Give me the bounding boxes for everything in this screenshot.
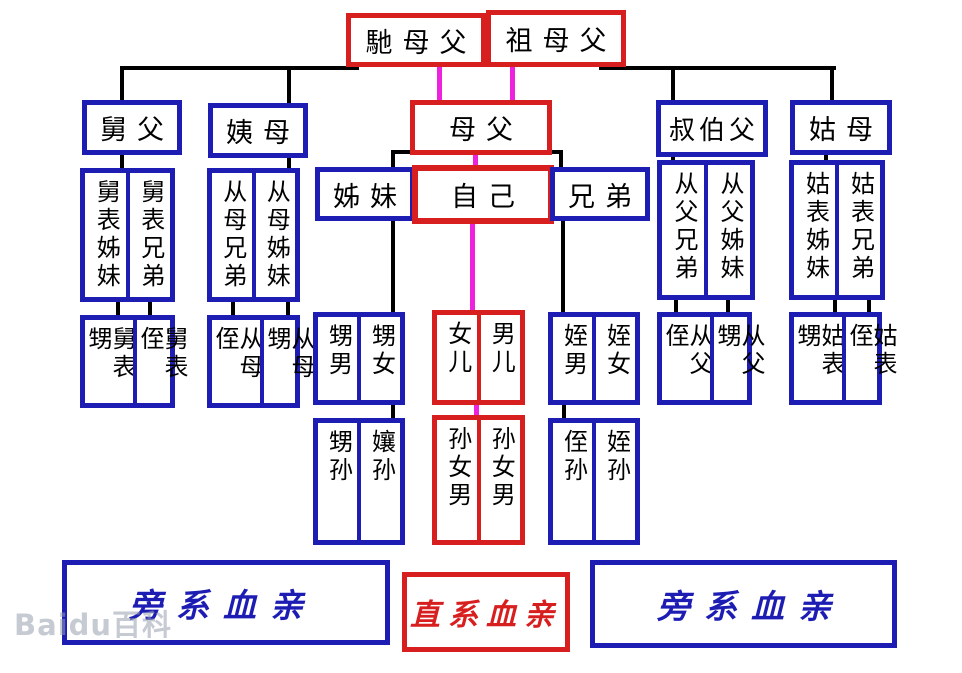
legend-collateral-right: 旁系血亲 [590,560,897,648]
node-column: 舅表侄 [133,320,185,403]
connector-line [120,66,359,70]
node-label: 侄孙 [561,429,585,485]
node-pair-congfu-nephews: 从父侄 从父甥 [657,312,752,405]
node-label: 从父姊妹 [717,171,741,283]
node-pair-own-grandchildren: 孙女男 孙女男 [432,415,525,545]
node-cousin-column: 舅表姊妹 [85,173,126,297]
node-label: 从父兄弟 [671,171,695,283]
node-self: 自己 [412,165,554,224]
baidu-baike-watermark: Baidu百科 [14,602,172,644]
node-pair-maternal-aunt-cousins: 从母兄弟 从母姊妹 [207,168,300,302]
node-label: 舅表甥 [85,326,133,403]
node-label: 祖母父 [496,19,617,58]
node-label: 孃孙 [369,429,393,485]
kinship-diagram: 馳母父 祖母父 舅父 姨母 母父 叔伯父 姑母 舅表姊妹 舅表兄弟 从母兄弟 从… [0,0,962,673]
node-column: 男儿 [477,315,521,400]
node-label: 叔伯父 [665,110,759,147]
node-column: 孃孙 [357,423,400,540]
node-column: 从母侄 [212,320,260,403]
node-label: 孙女男 [445,426,469,510]
node-column: 甥女 [357,317,400,400]
node-pair-gubiao-nephews: 姑表甥 姑表侄 [789,312,882,405]
node-cousin-column: 姑表兄弟 [835,165,880,295]
node-pair-own-children: 女儿 男儿 [432,310,525,405]
node-cousin-column: 从母兄弟 [212,173,252,297]
node-label: 甥孙 [326,429,350,485]
node-column: 甥孙 [318,423,357,540]
node-label: 姑表侄 [846,323,894,400]
node-label: 兄弟 [558,175,642,214]
node-column: 姑表侄 [842,317,894,400]
node-pair-sister-children: 甥男 甥女 [313,312,405,405]
node-label: 舅父 [90,108,174,147]
node-column: 姪孙 [592,423,635,540]
node-pair-maternal-uncle-cousins: 舅表姊妹 舅表兄弟 [80,168,175,302]
node-column: 侄孙 [553,423,592,540]
node-label: 舅表姊妹 [93,179,117,291]
node-label: 姑母 [799,108,883,147]
node-pair-paternal-uncle-cousins: 从父兄弟 从父姊妹 [657,160,755,300]
node-column: 甥男 [318,317,357,400]
connector-line [561,211,565,314]
legend-direct: 直系血亲 [402,572,570,652]
node-pair-congmu-nephews: 从母侄 从母甥 [207,315,300,408]
node-pair-jiubiao-nephews: 舅表甥 舅表侄 [80,315,175,408]
node-label: 姪男 [561,323,585,379]
node-label: 姪女 [604,323,628,379]
node-column: 孙女男 [477,420,521,540]
node-label: 从母侄 [212,326,260,403]
node-label: 男儿 [488,321,512,377]
node-column: 从母甥 [260,320,312,403]
node-pair-brother-children: 姪男 姪女 [548,312,640,405]
node-label: 甥女 [369,323,393,379]
node-cousin-column: 姑表姊妹 [794,165,835,295]
node-column: 姪男 [553,317,592,400]
node-column: 舅表甥 [85,320,133,403]
node-column: 女儿 [437,315,477,400]
node-maternal-grandparents: 馳母父 [346,13,486,67]
node-cousin-column: 舅表兄弟 [126,173,171,297]
node-brothers: 兄弟 [550,167,650,221]
node-label: 姊妹 [323,175,407,214]
node-label: 自己 [441,175,525,214]
node-label: 从母兄弟 [220,179,244,291]
node-label: 从母甥 [264,326,312,403]
node-maternal-uncle: 舅父 [82,100,182,155]
node-cousin-column: 从母姊妹 [252,173,296,297]
direct-line-connector [470,211,475,312]
connector-line [120,66,124,102]
node-column: 孙女男 [437,420,477,540]
node-column: 从父侄 [662,317,710,400]
node-label: 姑表姊妹 [803,171,827,283]
node-label: 孙女男 [488,426,512,510]
node-pair-sister-grandchildren: 甥孙 孃孙 [313,418,405,545]
node-label: 馳母父 [356,21,477,60]
node-label: 姨母 [216,111,300,150]
connector-line [671,66,675,102]
node-label: 甥男 [326,323,350,379]
node-label: 舅表侄 [137,326,185,403]
node-label: 姑表兄弟 [848,171,872,283]
connector-line [287,66,291,105]
node-cousin-column: 从父姊妹 [704,165,750,295]
node-column: 姪女 [592,317,635,400]
node-label: 姪孙 [604,429,628,485]
legend-label: 旁系血亲 [657,580,845,628]
connector-line [391,211,395,314]
node-pair-brother-grandchildren: 侄孙 姪孙 [548,418,640,545]
connector-line [830,66,834,102]
node-label: 母父 [439,108,523,147]
node-label: 舅表兄弟 [138,179,162,291]
node-cousin-column: 从父兄弟 [662,165,704,295]
node-column: 姑表甥 [794,317,842,400]
node-paternal-aunt: 姑母 [790,100,892,155]
node-pair-paternal-aunt-cousins: 姑表姊妹 姑表兄弟 [789,160,885,300]
node-maternal-aunt: 姨母 [208,103,308,158]
node-parents: 母父 [410,100,552,155]
legend-label: 直系血亲 [410,590,562,634]
node-label: 从父侄 [662,323,710,400]
node-sisters: 姊妹 [315,167,415,221]
node-label: 从母姊妹 [263,179,287,291]
node-paternal-grandparents: 祖母父 [486,10,626,67]
node-label: 从父甥 [714,323,762,400]
node-paternal-uncles: 叔伯父 [656,100,768,157]
node-column: 从父甥 [710,317,762,400]
connector-line [599,66,836,70]
node-label: 姑表甥 [794,323,842,400]
node-label: 女儿 [445,321,469,377]
